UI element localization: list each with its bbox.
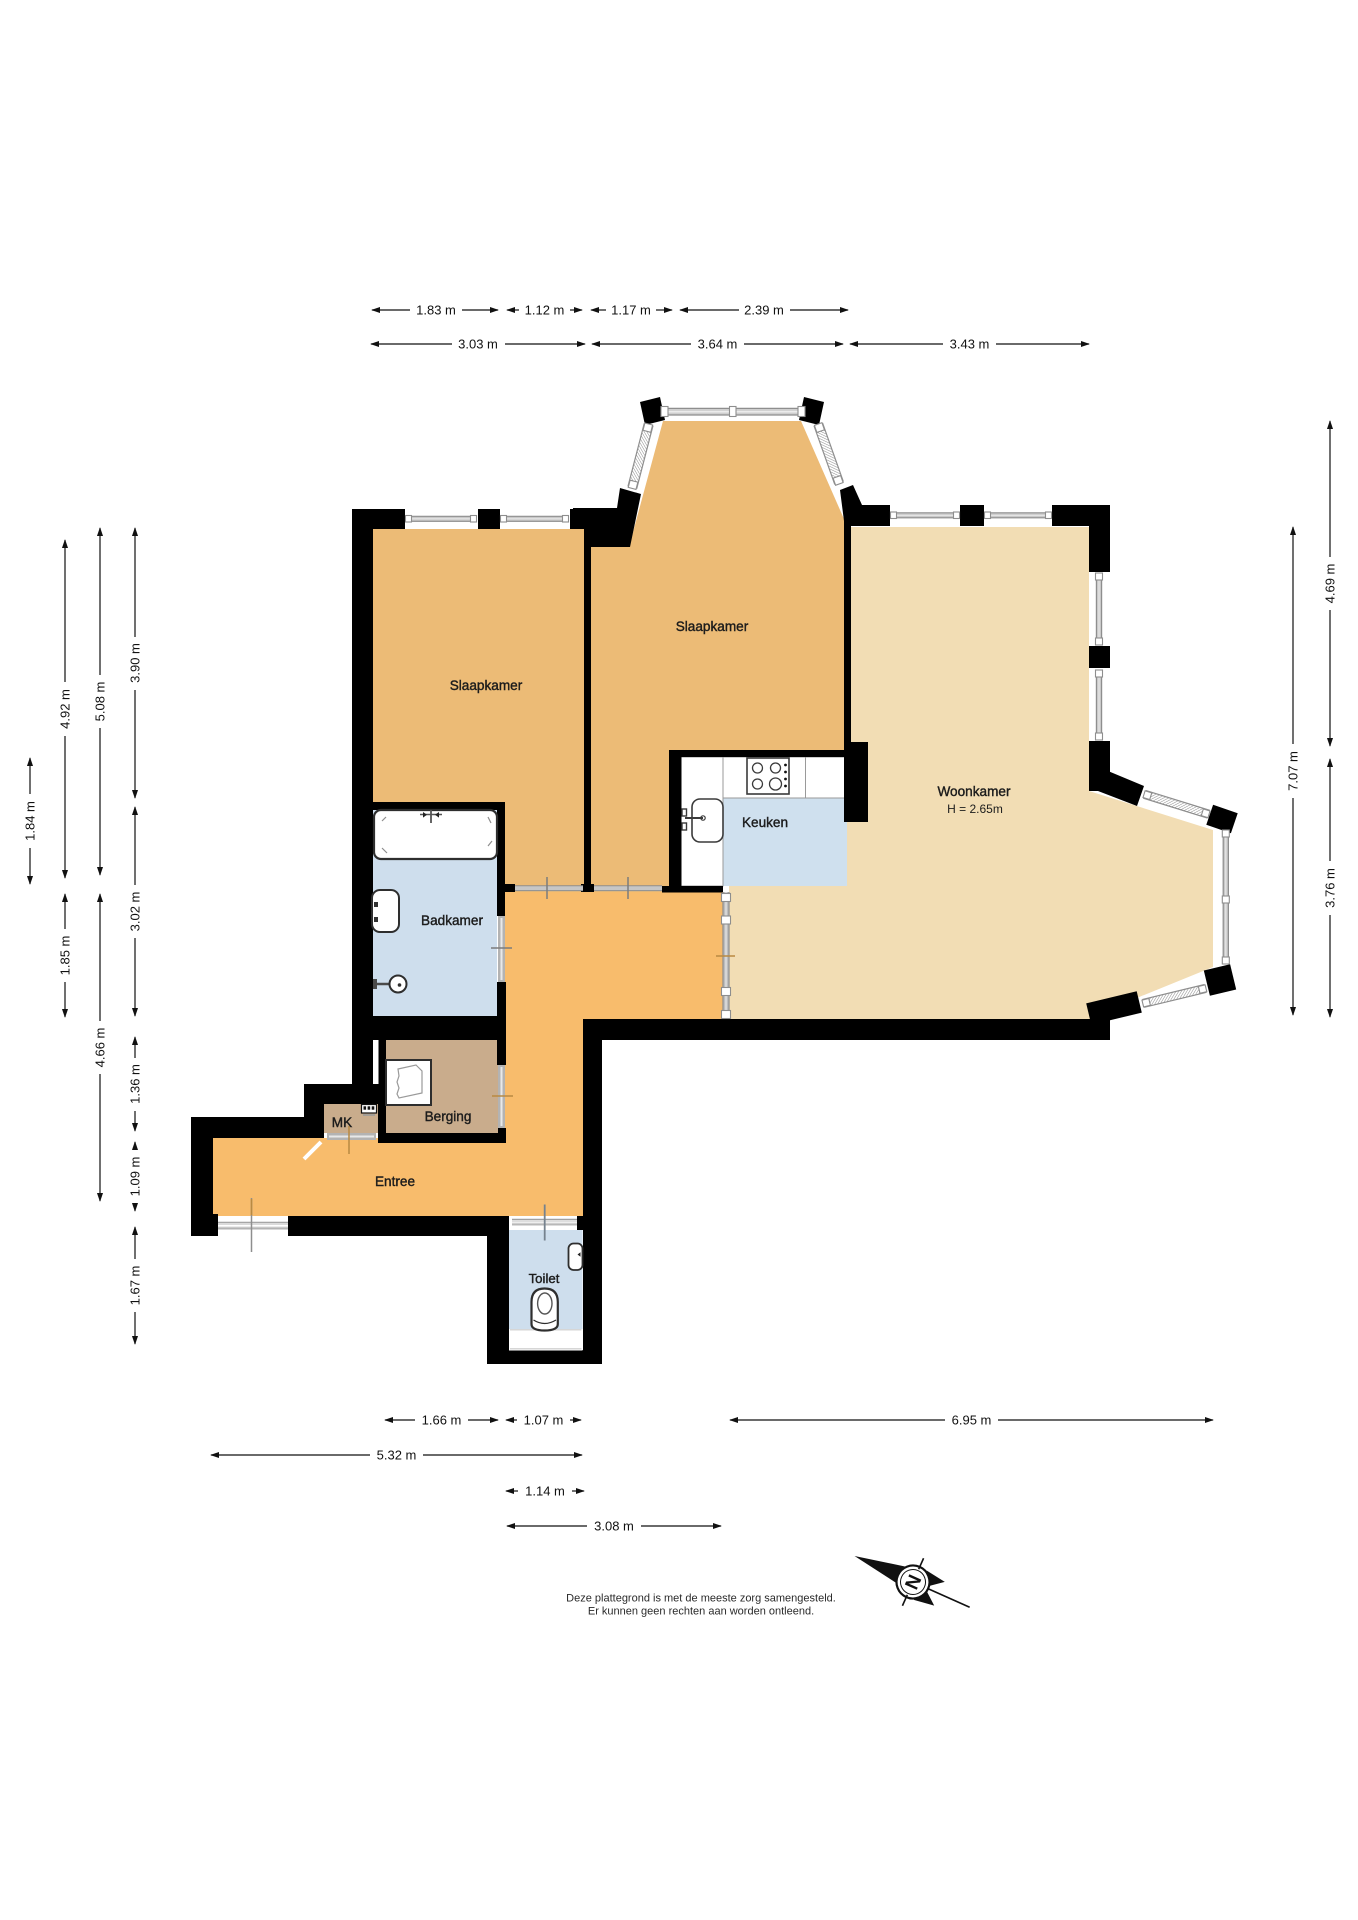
svg-text:Entree: Entree	[375, 1174, 415, 1189]
svg-text:1.84 m: 1.84 m	[23, 801, 38, 841]
svg-text:1.83 m: 1.83 m	[416, 303, 456, 318]
svg-text:Keuken: Keuken	[742, 815, 788, 830]
svg-text:Woonkamer: Woonkamer	[937, 784, 1011, 799]
svg-text:3.76 m: 3.76 m	[1323, 868, 1338, 908]
svg-text:1.14 m: 1.14 m	[525, 1484, 565, 1499]
svg-text:Toilet: Toilet	[529, 1271, 560, 1286]
svg-text:1.36 m: 1.36 m	[128, 1064, 143, 1104]
svg-text:4.66 m: 4.66 m	[93, 1028, 108, 1068]
svg-text:6.95 m: 6.95 m	[952, 1413, 992, 1428]
svg-text:3.43 m: 3.43 m	[950, 337, 990, 352]
svg-text:4.69 m: 4.69 m	[1323, 564, 1338, 604]
svg-text:Deze plattegrond is met de mee: Deze plattegrond is met de meeste zorg s…	[566, 1593, 836, 1605]
svg-text:3.02 m: 3.02 m	[128, 892, 143, 932]
svg-text:5.32 m: 5.32 m	[377, 1448, 417, 1463]
svg-text:1.07 m: 1.07 m	[524, 1413, 564, 1428]
svg-text:3.03 m: 3.03 m	[458, 337, 498, 352]
svg-text:3.64 m: 3.64 m	[698, 337, 738, 352]
svg-text:1.66 m: 1.66 m	[422, 1413, 462, 1428]
svg-text:2.39 m: 2.39 m	[744, 303, 784, 318]
svg-text:Slaapkamer: Slaapkamer	[450, 678, 523, 693]
svg-text:1.09 m: 1.09 m	[128, 1157, 143, 1197]
svg-text:3.08 m: 3.08 m	[594, 1519, 634, 1534]
svg-text:1.17 m: 1.17 m	[611, 303, 651, 318]
svg-text:Berging: Berging	[425, 1109, 472, 1124]
svg-text:Badkamer: Badkamer	[421, 913, 483, 928]
svg-text:1.85 m: 1.85 m	[58, 936, 73, 976]
svg-text:7.07 m: 7.07 m	[1286, 751, 1301, 791]
svg-text:3.90 m: 3.90 m	[128, 643, 143, 683]
svg-text:4.92 m: 4.92 m	[58, 689, 73, 729]
svg-text:1.67 m: 1.67 m	[128, 1266, 143, 1306]
svg-text:Slaapkamer: Slaapkamer	[676, 619, 749, 634]
svg-text:5.08 m: 5.08 m	[93, 682, 108, 722]
svg-text:Er kunnen geen rechten aan wor: Er kunnen geen rechten aan worden ontlee…	[588, 1606, 814, 1618]
svg-text:MK: MK	[332, 1115, 352, 1130]
svg-text:H = 2.65m: H = 2.65m	[947, 802, 1003, 816]
svg-text:1.12 m: 1.12 m	[525, 303, 565, 318]
